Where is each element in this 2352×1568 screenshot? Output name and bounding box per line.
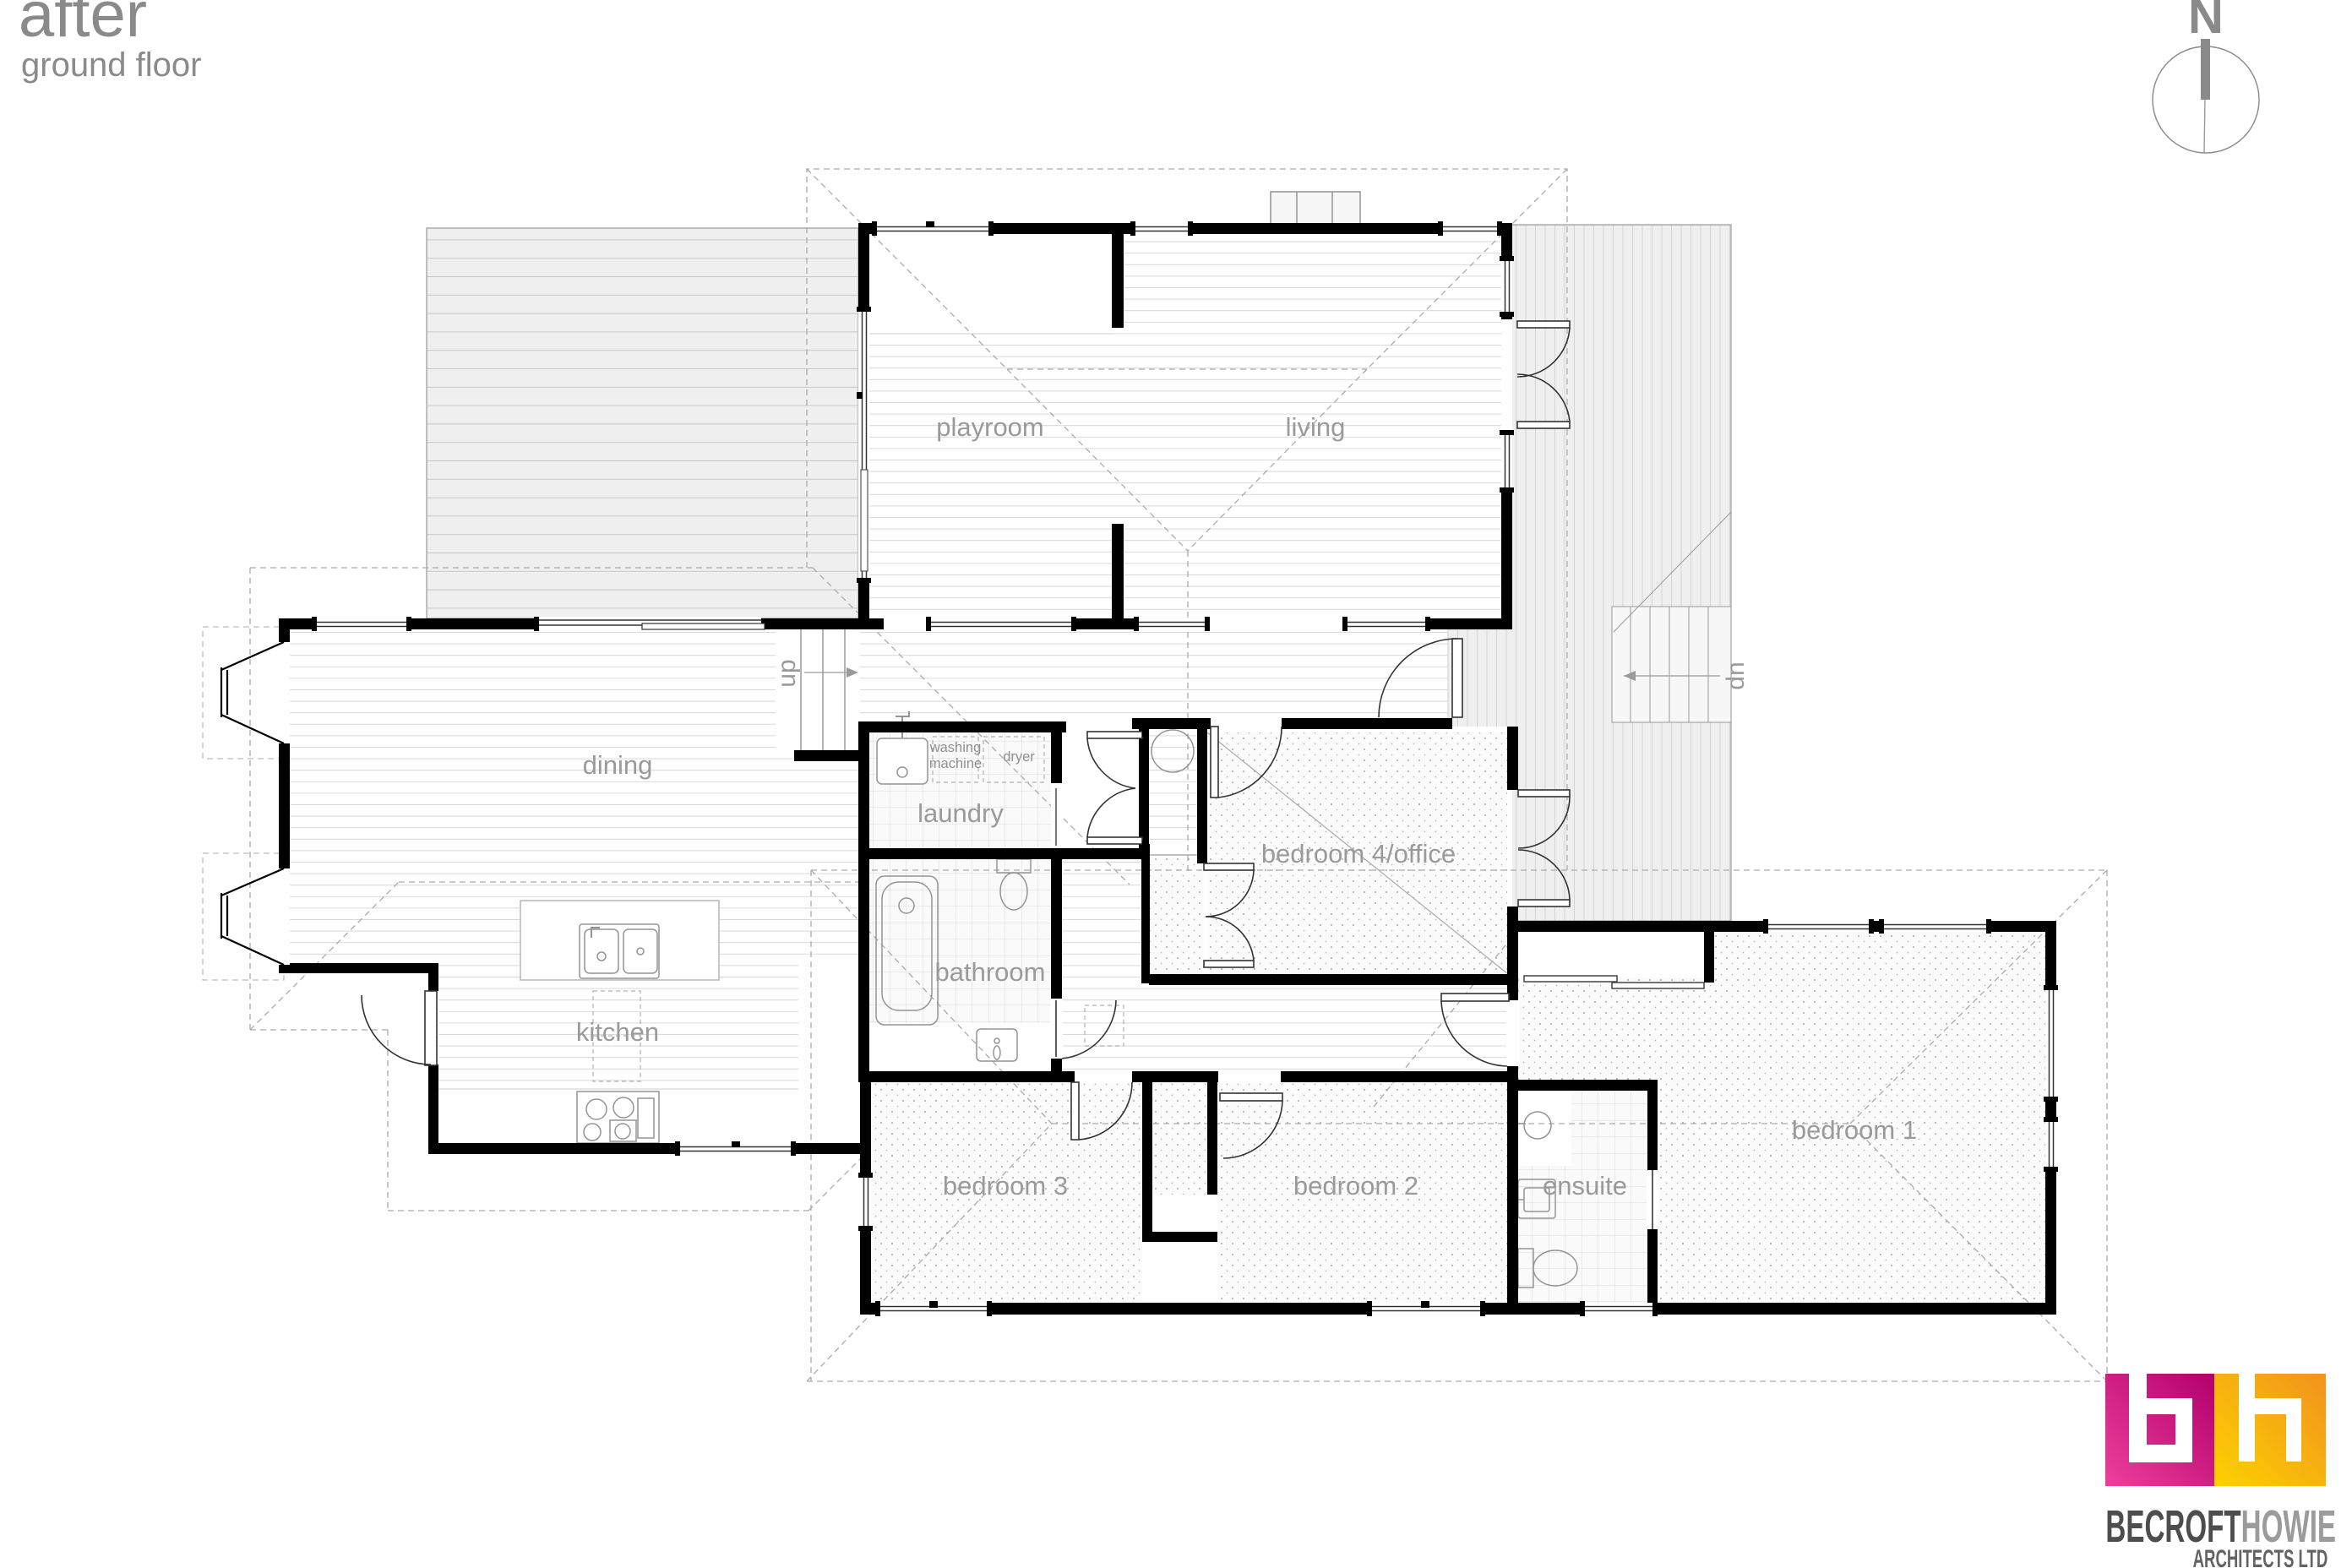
svg-text:playroom: playroom (936, 412, 1044, 442)
svg-text:up: up (773, 659, 801, 687)
svg-text:dn: dn (1722, 661, 1750, 689)
svg-text:ensuite: ensuite (1543, 1171, 1627, 1200)
svg-text:after: after (19, 0, 147, 51)
svg-text:washing: washing (929, 740, 982, 755)
svg-text:N: N (2188, 0, 2224, 44)
svg-text:kitchen: kitchen (576, 1017, 659, 1047)
svg-text:bedroom 4/office: bedroom 4/office (1261, 839, 1456, 868)
svg-text:bathroom: bathroom (935, 957, 1046, 987)
svg-text:living: living (1286, 412, 1346, 442)
svg-text:dining: dining (583, 750, 653, 780)
svg-text:ground floor: ground floor (21, 46, 201, 84)
svg-text:dryer: dryer (1003, 749, 1035, 765)
svg-text:machine: machine (929, 756, 982, 771)
svg-text:laundry: laundry (917, 798, 1004, 828)
svg-text:bedroom 2: bedroom 2 (1293, 1171, 1418, 1200)
svg-text:bedroom 3: bedroom 3 (943, 1171, 1068, 1200)
svg-text:ARCHITECTS LTD: ARCHITECTS LTD (2193, 1545, 2328, 1568)
svg-text:bedroom 1: bedroom 1 (1792, 1115, 1917, 1145)
